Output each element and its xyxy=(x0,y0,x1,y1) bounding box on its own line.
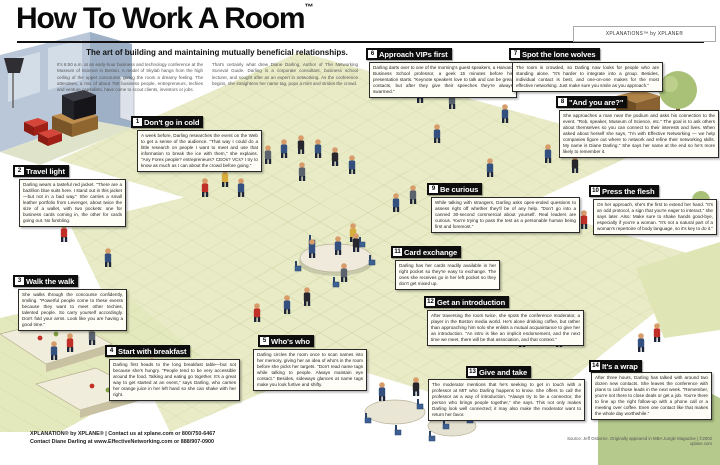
callout-header-whos-who: 5Who's who xyxy=(258,335,314,347)
callout-body-whos-who: Darling circles the room once to scan na… xyxy=(253,349,367,391)
callout-body-walk-the-walk: She walks through the concourse confiden… xyxy=(18,289,127,331)
round-table-bottom-1 xyxy=(365,400,425,424)
callout-body-press-the-flesh: On her approach, she's the first to exte… xyxy=(593,199,717,235)
callout-number: 14 xyxy=(591,362,600,370)
callout-title: Give and take xyxy=(479,368,527,377)
callout-header-approach-vips-first: 6Approach VIPs first xyxy=(366,48,452,60)
callout-header-spot-the-lone-wolves: 7Spot the lone wolves xyxy=(509,48,600,60)
callout-title: Who's who xyxy=(271,337,310,346)
callout-number: 5 xyxy=(260,337,269,345)
intro-paragraph-1: It's 6:50 a.m. at an early-hour business… xyxy=(57,62,203,93)
callout-body-dont-go-in-cold: A week before, Darling researches the ev… xyxy=(137,130,262,172)
callout-title: Spot the lone wolves xyxy=(522,50,596,59)
callout-body-give-and-take: The moderator mentions that he's seeking… xyxy=(428,379,585,421)
trademark-symbol: ™ xyxy=(304,2,313,12)
footer-contact: XPLANATION® by XPLANE® | Contact us at x… xyxy=(30,430,215,447)
chair xyxy=(395,425,401,435)
callout-title: Walk the walk xyxy=(26,277,74,286)
page-title: How To Work A Room™ xyxy=(16,2,313,36)
callout-body-approach-vips-first: Darling darts over to one of the morning… xyxy=(369,62,517,98)
callout-header-press-the-flesh: 10Press the flesh xyxy=(589,185,659,197)
callout-body-its-a-wrap: After three hours, Darling has talked wi… xyxy=(591,372,712,420)
callout-body-start-with-breakfast: Darling first heads to the long breakfas… xyxy=(109,359,240,401)
callout-number: 13 xyxy=(468,368,477,376)
callout-title: "And you are?" xyxy=(569,98,623,107)
callout-body-be-curious: While talking with strangers, Darling as… xyxy=(431,197,580,233)
attendee-figure xyxy=(413,377,419,396)
callout-title: Approach VIPs first xyxy=(379,50,448,59)
callout-header-card-exchange: 11Card exchange xyxy=(391,246,461,258)
callout-header-travel-light: 2Travel light xyxy=(13,165,69,177)
callout-title: It's a wrap xyxy=(602,362,638,371)
callout-title: Be curious xyxy=(440,185,478,194)
callout-number: 7 xyxy=(511,50,520,58)
callout-title: Start with breakfast xyxy=(118,347,186,356)
attendee-figure xyxy=(638,333,644,352)
callout-title: Get an introduction xyxy=(437,298,505,307)
callout-header-walk-the-walk: 3Walk the walk xyxy=(13,275,78,287)
callout-number: 6 xyxy=(368,50,377,58)
callout-number: 2 xyxy=(15,167,24,175)
callout-header-start-with-breakfast: 4Start with breakfast xyxy=(105,345,190,357)
callout-header-its-a-wrap: 14It's a wrap xyxy=(589,360,642,372)
callout-number: 12 xyxy=(426,298,435,306)
chair xyxy=(417,399,423,409)
callout-body-spot-the-lone-wolves: The room is crowded, so Darling now look… xyxy=(512,62,663,92)
callout-number: 11 xyxy=(393,248,402,256)
callout-body-card-exchange: Darling has her cards readily available … xyxy=(395,260,500,290)
callout-body-and-you-are: She approaches a man near the podium and… xyxy=(559,110,719,158)
darling-figure xyxy=(654,323,660,342)
callout-header-give-and-take: 13Give and take xyxy=(466,366,531,378)
callout-number: 10 xyxy=(591,187,600,195)
callout-number: 8 xyxy=(558,98,567,106)
callout-header-dont-go-in-cold: 1Don't go in cold xyxy=(131,116,203,128)
infographic-poster: How To Work A Room™ XPLANATiONS™ by XPLA… xyxy=(0,0,720,465)
intro-paragraph-2: That's certainly what drew Diane Darling… xyxy=(212,62,358,87)
callout-title: Don't go in cold xyxy=(144,118,199,127)
callout-header-get-an-introduction: 12Get an introduction xyxy=(424,296,509,308)
callout-number: 1 xyxy=(133,118,142,126)
attendee-figure xyxy=(379,382,385,401)
callout-number: 4 xyxy=(107,347,116,355)
brand-badge: XPLANATiONS™ by XPLANE® xyxy=(573,26,716,42)
footer-contact-line1: XPLANATION® by XPLANE® | Contact us at x… xyxy=(30,430,215,438)
callout-title: Press the flesh xyxy=(602,187,655,196)
callout-header-and-you-are: 8"And you are?" xyxy=(556,96,627,108)
callout-title: Card exchange xyxy=(404,248,457,257)
callout-title: Travel light xyxy=(26,167,65,176)
footer-contact-line2: Contact Diane Darling at www.EffectiveNe… xyxy=(30,438,215,446)
footer-source: Source: Jeff Osborne. Originally appeare… xyxy=(548,436,712,446)
callout-number: 3 xyxy=(15,277,24,285)
callout-header-be-curious: 9Be curious xyxy=(427,183,482,195)
callout-body-get-an-introduction: After traversing the room twice, she spo… xyxy=(427,310,584,346)
callout-number: 9 xyxy=(429,185,438,193)
subtitle: The art of building and maintaining mutu… xyxy=(72,48,362,57)
callout-body-travel-light: Darling wears a tasteful red jacket. "Th… xyxy=(19,179,126,227)
